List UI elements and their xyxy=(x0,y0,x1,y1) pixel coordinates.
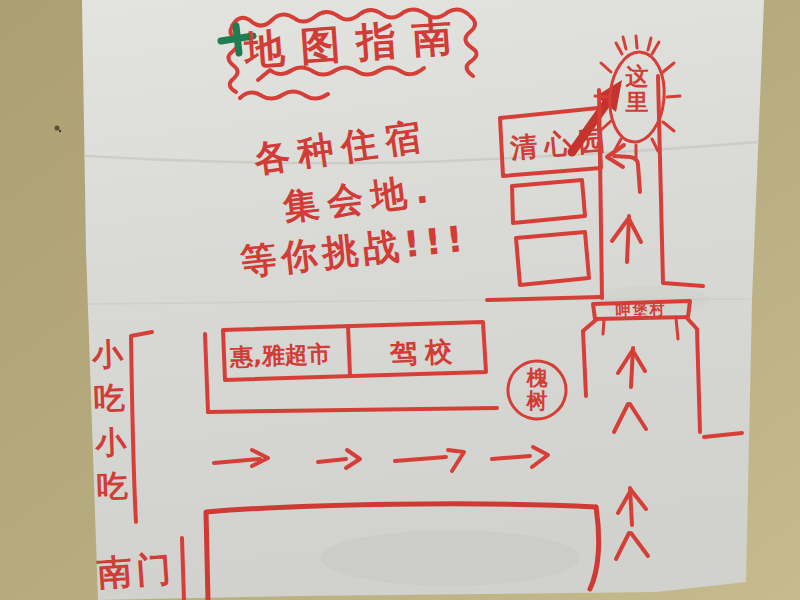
south-gate-road-line xyxy=(182,538,184,600)
cardboard-speck xyxy=(55,126,60,131)
here-callout-label: 这里 xyxy=(625,63,649,115)
paper-shadow-smudge xyxy=(320,530,580,586)
south-gate-label: 南门 xyxy=(96,548,177,593)
gate-inner-post-right xyxy=(676,318,678,339)
gate-sign-label: 呷堡村 xyxy=(615,300,667,320)
driving-school-label: 驾校 xyxy=(388,335,461,370)
tree-label: 槐树 xyxy=(526,366,549,413)
gate-inner-post-left xyxy=(603,319,604,334)
supermarket-label: 惠,雅超市 xyxy=(229,340,332,370)
photo-of-hand-drawn-map: 地图指南 各种住宿 集会地. 等你挑战!!! 清心园 这里 xyxy=(0,0,800,600)
cardboard-speck-2 xyxy=(59,130,61,132)
shops-divider xyxy=(348,326,350,375)
